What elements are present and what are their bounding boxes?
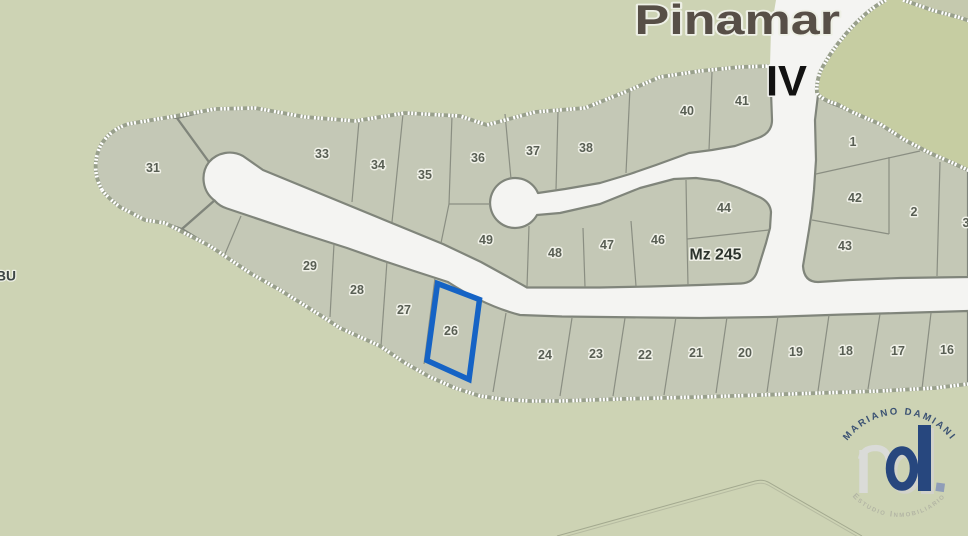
svg-text:16: 16 xyxy=(940,343,954,357)
svg-text:47: 47 xyxy=(600,238,614,252)
svg-text:20: 20 xyxy=(738,346,752,360)
svg-text:43: 43 xyxy=(838,239,852,253)
svg-text:24: 24 xyxy=(538,348,552,362)
svg-text:41: 41 xyxy=(735,94,749,108)
svg-text:2: 2 xyxy=(911,205,918,219)
svg-text:35: 35 xyxy=(418,168,432,182)
svg-text:48: 48 xyxy=(548,246,562,260)
svg-text:17: 17 xyxy=(891,344,905,358)
svg-text:3: 3 xyxy=(963,216,968,230)
svg-text:31: 31 xyxy=(146,161,160,175)
svg-text:33: 33 xyxy=(315,147,329,161)
svg-text:BU: BU xyxy=(0,269,16,284)
svg-text:IV: IV xyxy=(766,59,808,106)
svg-text:44: 44 xyxy=(717,201,731,215)
svg-text:19: 19 xyxy=(789,345,803,359)
svg-text:27: 27 xyxy=(397,303,411,317)
svg-text:23: 23 xyxy=(589,347,603,361)
svg-text:Pinamar: Pinamar xyxy=(635,0,841,43)
svg-text:Mz 245: Mz 245 xyxy=(690,247,742,264)
svg-text:18: 18 xyxy=(839,344,853,358)
svg-text:34: 34 xyxy=(371,158,385,172)
svg-text:21: 21 xyxy=(689,346,703,360)
svg-text:46: 46 xyxy=(651,233,665,247)
svg-text:42: 42 xyxy=(848,191,862,205)
svg-text:36: 36 xyxy=(471,151,485,165)
svg-text:29: 29 xyxy=(303,259,317,273)
svg-text:22: 22 xyxy=(638,348,652,362)
svg-text:37: 37 xyxy=(526,144,540,158)
svg-text:1: 1 xyxy=(850,135,857,149)
svg-text:38: 38 xyxy=(579,141,593,155)
svg-text:40: 40 xyxy=(680,104,694,118)
svg-text:28: 28 xyxy=(350,283,364,297)
svg-text:49: 49 xyxy=(479,233,493,247)
svg-text:26: 26 xyxy=(444,324,458,338)
